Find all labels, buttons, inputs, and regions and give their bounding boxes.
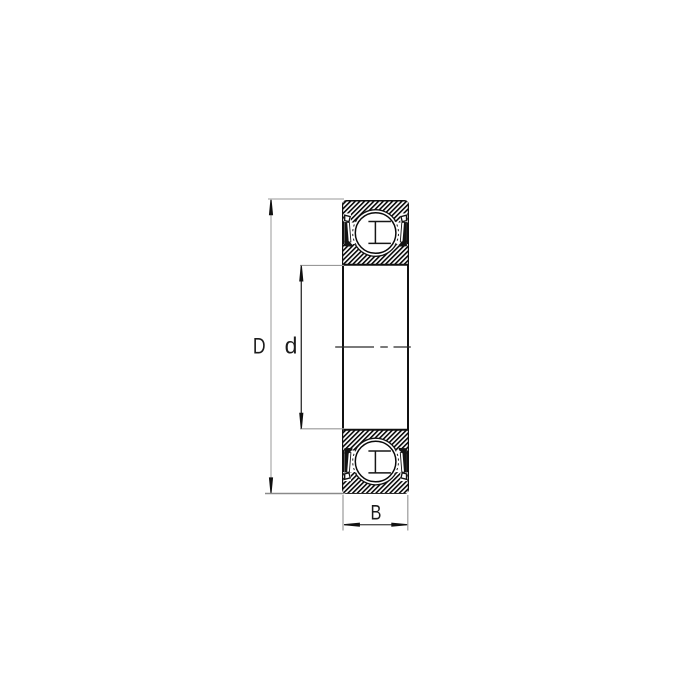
- svg-text:B: B: [371, 500, 382, 523]
- svg-text:d: d: [285, 333, 298, 359]
- svg-text:D: D: [253, 335, 266, 359]
